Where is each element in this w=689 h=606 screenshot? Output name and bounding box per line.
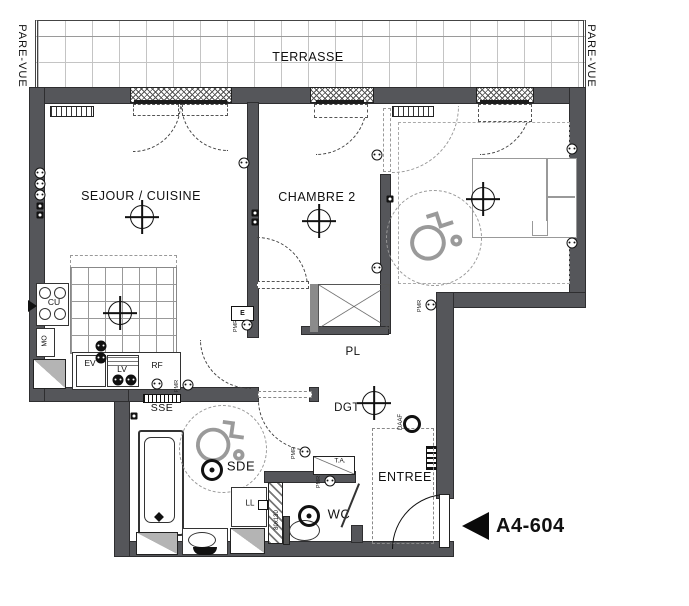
ta-label: T.A. (334, 458, 345, 465)
terrace-divider-line (38, 36, 583, 37)
ceiling-light-icon (307, 209, 331, 233)
washing-machine-icon (258, 500, 268, 510)
sejour-label: SEJOUR / CUISINE (81, 189, 201, 203)
chambre1-door-leaf (383, 108, 391, 172)
switch-icon (131, 413, 138, 420)
kitchen-tiles (70, 267, 177, 354)
chambre1-window-leaf (478, 104, 532, 122)
e-box: E (231, 306, 254, 321)
power-outlet-icon (426, 300, 437, 311)
duct-shaft (33, 359, 66, 389)
sejour-door-leaf (133, 104, 179, 116)
bed (472, 158, 577, 238)
floor-plan-sheet: TERRASSE PARE-VUE PARE-VUE SEJOUR / CUIS… (0, 0, 689, 606)
hood-marker-icon (28, 300, 37, 312)
micro-oven-label: MO (42, 335, 49, 346)
wall (437, 293, 585, 307)
chambre2-door-leaf (257, 281, 309, 289)
toilet-bowl (289, 520, 320, 541)
pare-vue-left-label: PARE-VUE (16, 20, 28, 92)
ceiling-light-icon (130, 205, 154, 229)
washing-machine-label: LL (246, 499, 255, 508)
terrace-label: TERRASSE (272, 50, 343, 64)
chambre2-window-leaf (314, 104, 368, 118)
daaf-label: DAAF (398, 414, 404, 430)
closet-side (310, 284, 318, 332)
bed-fold-corner (532, 221, 547, 236)
radiator (50, 106, 94, 117)
pl-label: PL (345, 346, 360, 358)
duct-shaft (136, 532, 178, 555)
bed-pillow-divider (546, 196, 575, 198)
wheelchair-icon (188, 410, 251, 473)
sse-label: SSE (151, 402, 174, 414)
dishwasher-label: LV (117, 364, 127, 374)
wc-door-leaf (341, 483, 360, 527)
cooktop-label: CU (48, 297, 60, 307)
sink-label: EV (84, 358, 95, 368)
burner-icon (39, 308, 51, 320)
sde-door-leaf (258, 391, 312, 398)
ceiling-light-icon (362, 391, 386, 415)
entrance-door-leaf (439, 494, 450, 548)
burner-icon (54, 308, 66, 320)
wall (248, 103, 258, 337)
sejour-door-leaf (182, 104, 228, 116)
chambre2-label: CHAMBRE 2 (278, 190, 355, 204)
fridge-label: RF (151, 360, 162, 370)
pmr-label: PMR (417, 300, 423, 312)
pare-vue-right-label: PARE-VUE (585, 20, 597, 92)
washbasin-bowl (188, 532, 216, 548)
wall (437, 293, 453, 498)
wc-dimension-label: 80x130 (274, 510, 280, 530)
towel-radiator (143, 394, 181, 403)
duct-shaft (230, 528, 265, 554)
dgt-label: DGT (334, 402, 360, 414)
closet-shelves (318, 284, 390, 329)
power-outlet-icon (372, 150, 383, 161)
pmr-label: PMR (233, 320, 239, 332)
wall (115, 388, 129, 556)
wall (352, 526, 362, 542)
unit-number-label: A4-604 (496, 515, 565, 538)
bathtub-inner (144, 437, 175, 523)
sejour-door-swing (200, 340, 251, 389)
unit-pointer-icon (462, 512, 489, 540)
